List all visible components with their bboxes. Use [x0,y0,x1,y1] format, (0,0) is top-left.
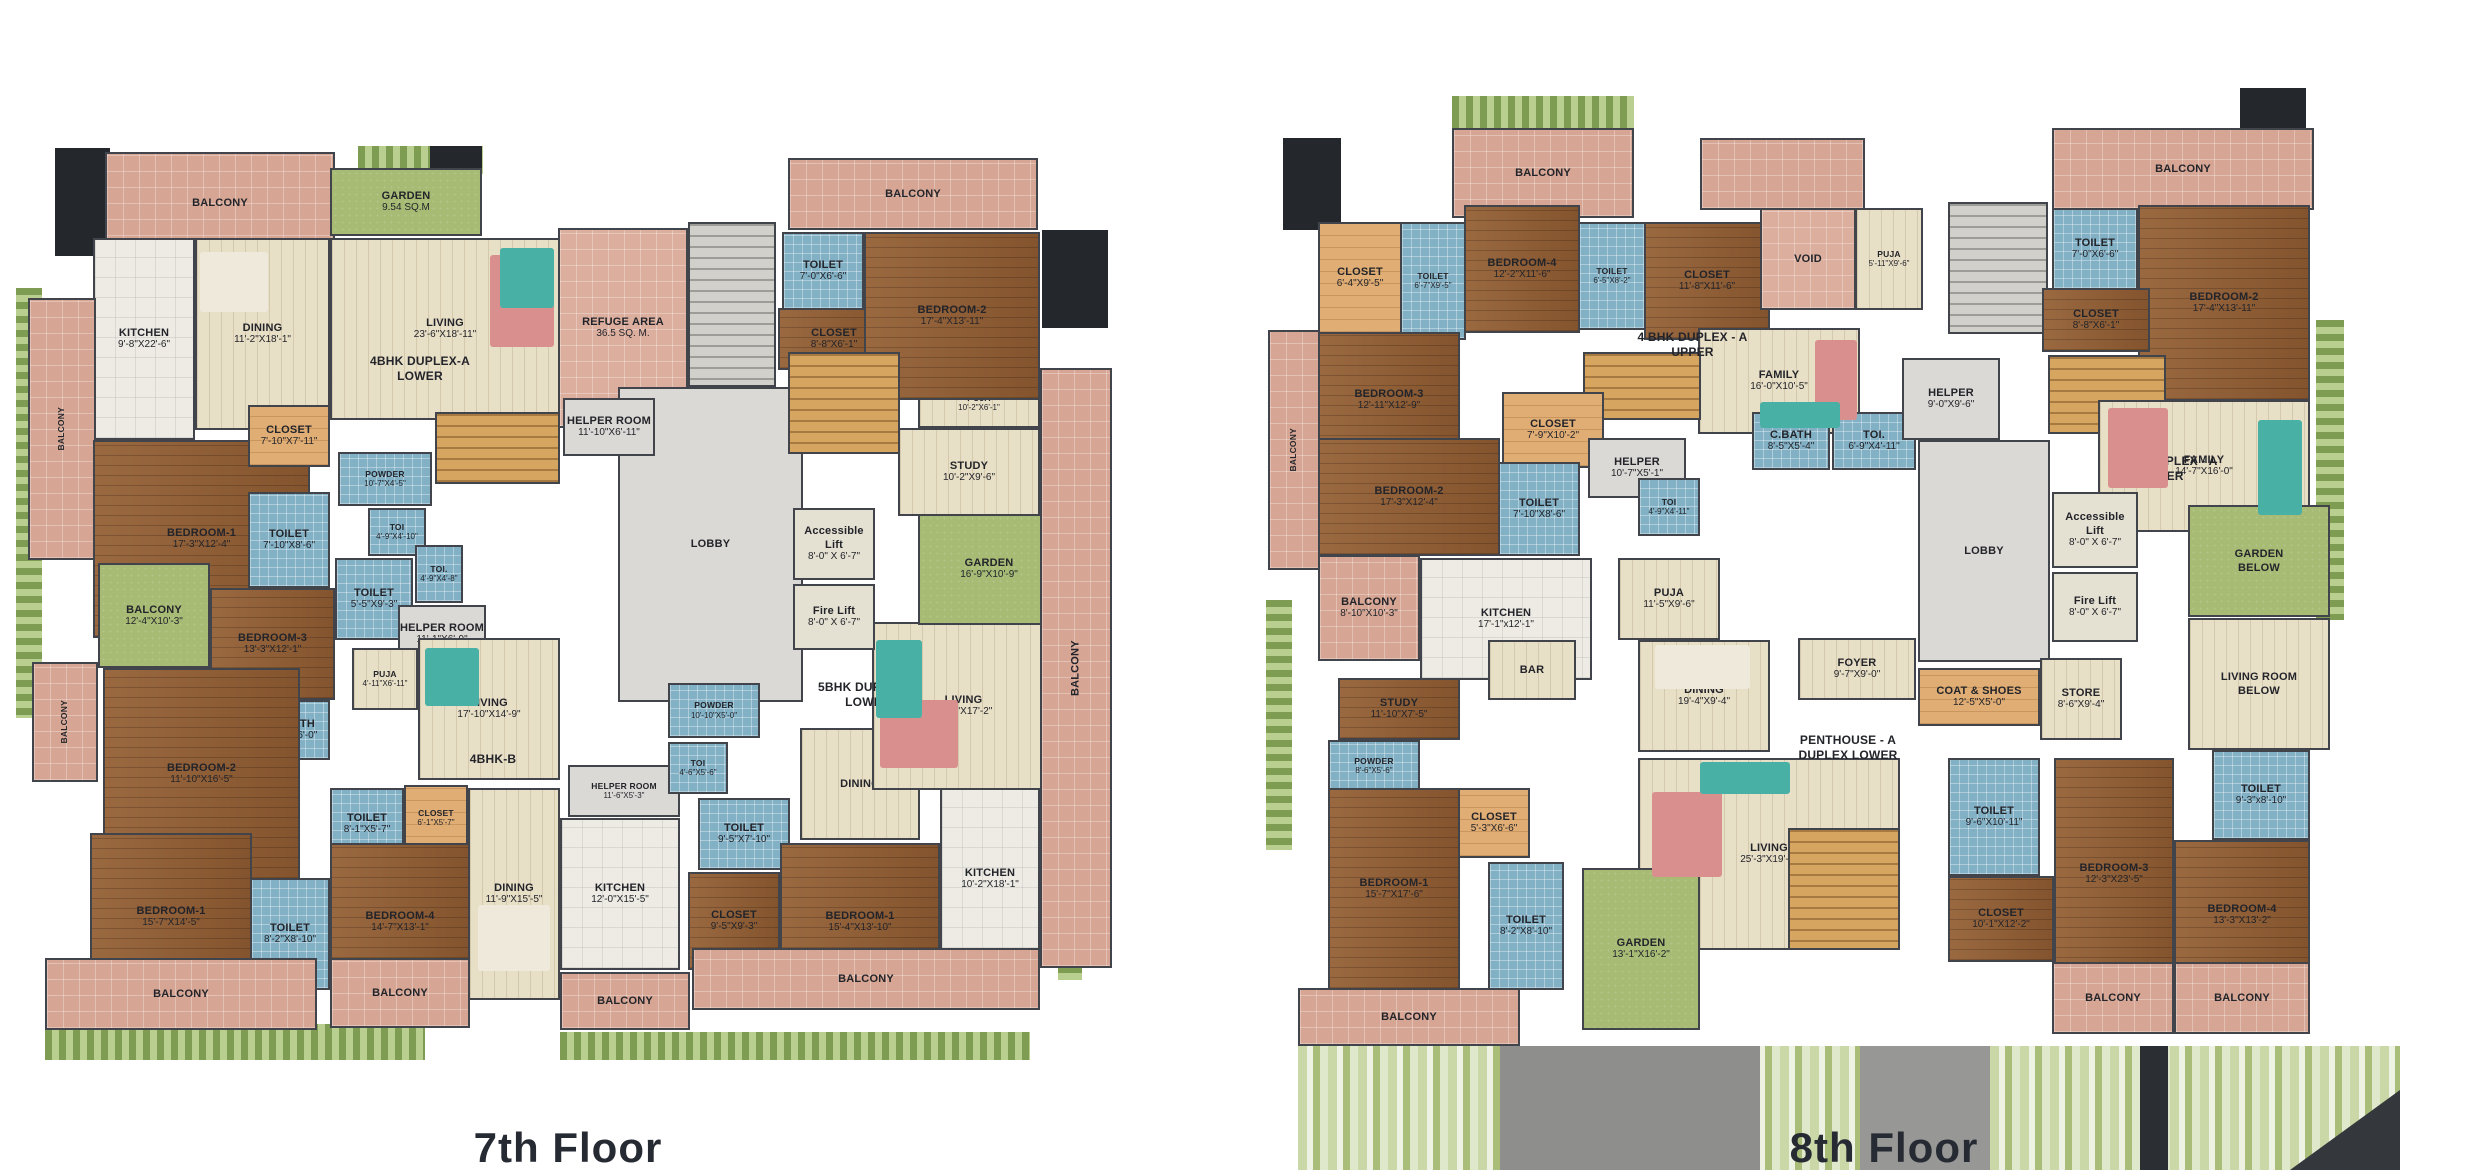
room-closet: CLOSET7'-10"X7'-11" [248,405,330,467]
room-toilet: TOILET9'-6"X10'-11" [1948,758,2040,876]
room-balcony: BALCONY [330,958,470,1028]
plan-canvas: BALCONYGARDEN9.54 SQ.MBALCONYREFUGE AREA… [0,0,2481,1170]
room-toilet: TOILET6'-7"X9'-5" [1400,222,1466,340]
floor-title-8th-floor: 8th Floor [1790,1124,1979,1170]
room-balcony: BALCONY [788,158,1038,230]
room-stairs [1948,202,2048,334]
room-study: STUDY11'-10"X7'-5" [1338,678,1460,740]
ground-patch [2140,1046,2168,1170]
floor-title-7th-floor: 7th Floor [474,1124,663,1170]
room-helper-room: HELPER ROOM11'-10"X6'-11" [563,398,655,456]
room-closet: CLOSET6'-4"X9'-5" [1318,222,1402,334]
room-living-room-below: LIVING ROOMBELOW [2188,618,2330,750]
room-garden-below: GARDENBELOW [2188,505,2330,617]
unit-label-4-bhk-duplex-a-upper: 4 BHK DUPLEX - AUPPER [1625,328,1760,362]
room-balcony: BALCONY [45,958,317,1030]
room-powder: POWDER10'-7"X4'-5" [338,452,432,506]
room-toilet: TOILET7'-10"X8'-6" [248,492,330,588]
room-toilet: TOILET6'-5"X8'-2" [1578,222,1646,330]
room-bar: BAR [1488,640,1576,700]
room-garden: GARDEN16'-9"X10'-9" [918,513,1060,625]
room-kitchen: KITCHEN12'-0"X15'-5" [560,818,680,970]
room-stairs [1700,138,1865,210]
room-closet: CLOSET5'-3"X6'-6" [1458,788,1530,858]
room-puja: PUJA4'-11"X6'-11" [352,648,418,710]
room-helper-room: HELPER ROOM11'-6"X5'-3" [568,765,680,817]
room-closet: CLOSET8'-8"X6'-1" [2042,288,2150,352]
room-toi: TOI4'-6"X5'-6" [668,742,728,794]
room-toi: TOI.4'-9"X4'-8" [415,545,463,603]
room-void: VOID [1760,208,1856,310]
plants-strip [560,1032,1030,1060]
room-bedroom-3: BEDROOM-312'-3"X23'-5" [2054,758,2174,990]
room-balcony: BALCONY [2052,962,2174,1034]
room-balcony: BALCONY8'-10"X10'-3" [1318,555,1420,661]
furniture-accent [876,640,922,718]
room-helper: HELPER9'-0"X9'-6" [1902,358,2000,440]
room-toilet: TOILET9'-3"x8'-10" [2212,750,2310,840]
unit-label-penthouse-a-duplex-lower: PENTHOUSE - ADUPLEX LOWER [1788,732,1908,764]
room-toilet: TOILET7'-10"X8'-6" [1498,462,1580,556]
unit-label-4bhk-b: 4BHK-B [448,750,538,770]
room-toilet: TOILET7'-0"X6'-6" [782,232,864,310]
ground-patch [1500,1046,1760,1170]
room-stairs [435,412,560,484]
unit-label-4bhk-duplex-a-lower: 4BHK DUPLEX-ALOWER [355,352,485,386]
room-toilet: TOILET9'-5"X7'-10" [698,798,790,870]
room-balcony: BALCONY [2052,128,2314,210]
room-study: STUDY10'-2"X9'-6" [898,428,1040,516]
wall-block [1283,138,1341,230]
room-garden: GARDEN9.54 SQ.M [330,168,482,236]
furniture-accent [1700,762,1790,794]
plants-strip [1266,600,1292,850]
room-store: STORE8'-6"X9'-4" [2040,658,2122,740]
room-coat-shoes: COAT & SHOES12'-5"X5'-0" [1918,668,2040,726]
room-toi: TOI4'-9"X4'-11" [1638,478,1700,536]
furniture-accent [478,905,550,971]
room-closet: CLOSET11'-8"X11'-6" [1644,222,1770,340]
room-balcony: BALCONY [692,948,1040,1010]
room-foyer: FOYER9'-7"X9'-0" [1798,638,1916,700]
furniture-accent [500,248,554,308]
furniture-accent [1655,645,1750,689]
room-puja: PUJA11'-5"X9'-6" [1618,558,1720,640]
room-fire-lift: Fire Lift8'-0" X 6'-7" [793,584,875,650]
room-balcony: BALCONY [32,662,98,782]
furniture-accent [2258,420,2302,515]
room-balcony: BALCONY [28,298,96,560]
room-lobby: LOBBY [1918,440,2050,662]
room-closet: CLOSET6'-1"X5'-7" [404,785,468,851]
room-kitchen: KITCHEN10'-2"X18'-1" [940,788,1040,970]
room-stairs [1788,828,1900,950]
room-kitchen: KITCHEN9'-8"X22'-6" [93,238,195,440]
room-stairs [688,222,776,387]
room-accessible-lift: AccessibleLift8'-0" X 6'-7" [2052,492,2138,568]
room-bedroom-1: BEDROOM-115'-7"X17'-6" [1328,788,1460,990]
room-toilet: TOILET7'-0"X6'-6" [2052,208,2138,290]
furniture-accent [200,252,268,312]
room-fire-lift: Fire Lift8'-0" X 6'-7" [2052,572,2138,642]
furniture-accent [425,648,479,706]
room-balcony: BALCONY [1298,988,1520,1046]
room-balcony: BALCONY [560,972,690,1030]
room-accessible-lift: AccessibleLift8'-0" X 6'-7" [793,508,875,580]
room-powder: POWDER8'-6"X5'-6" [1328,740,1420,792]
plants-strip [1452,96,1634,128]
room-balcony: BALCONY12'-4"X10'-3" [98,563,210,668]
room-powder: POWDER10'-10"X5'-0" [668,683,760,738]
furniture-accent [1652,792,1722,877]
wall-block [1042,230,1108,328]
room-bedroom-4: BEDROOM-412'-2"X11'-6" [1464,205,1580,333]
room-toilet: TOILET8'-2"X8'-10" [1488,862,1564,990]
room-closet: CLOSET10'-1"X12'-2" [1948,876,2054,962]
room-puja: PUJA5'-11"X9'-6" [1855,208,1923,310]
room-balcony: BALCONY [1268,330,1320,570]
room-stairs [788,352,900,454]
furniture-accent [1760,402,1840,428]
room-balcony: BALCONY [2174,962,2310,1034]
furniture-accent [2108,408,2168,488]
room-bedroom-2: BEDROOM-217'-3"X12'-4" [1318,438,1500,556]
room-balcony: BALCONY [1040,368,1112,968]
room-garden: GARDEN13'-1"X16'-2" [1582,868,1700,1030]
